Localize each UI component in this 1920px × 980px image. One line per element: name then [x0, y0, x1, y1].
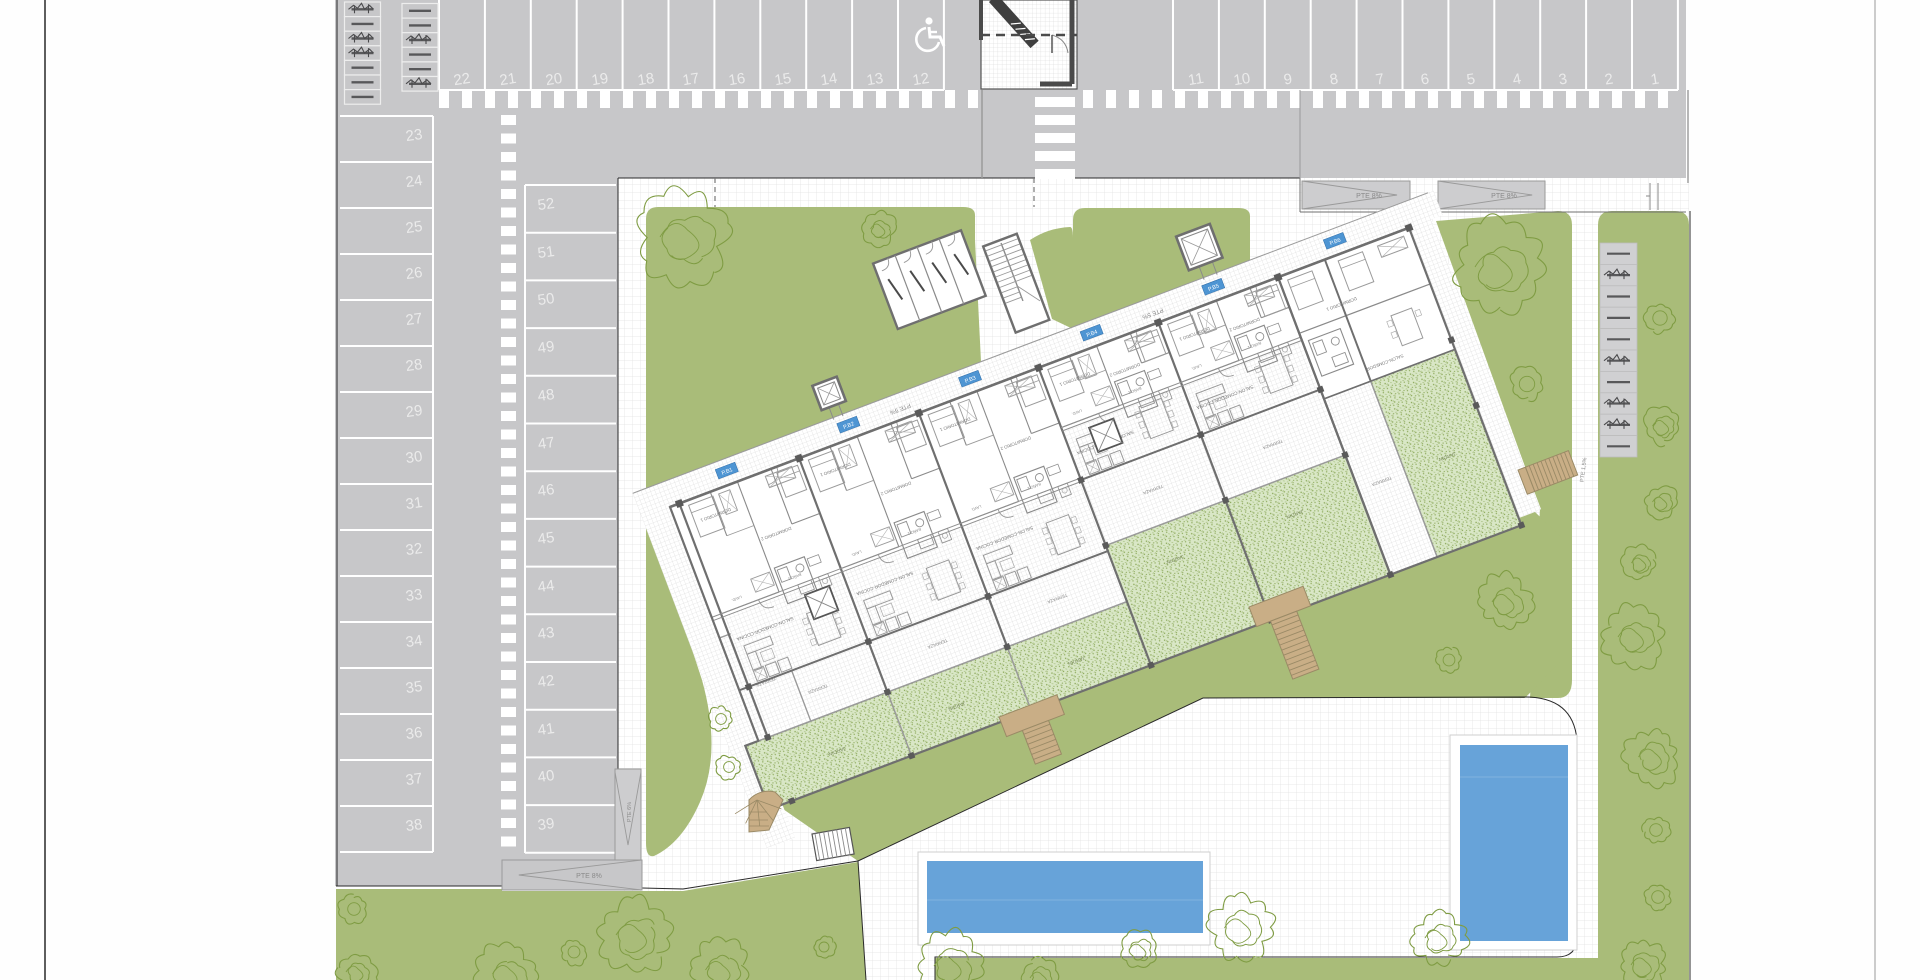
- svg-text:40: 40: [537, 767, 556, 786]
- svg-text:50: 50: [537, 290, 556, 309]
- svg-text:49: 49: [537, 338, 556, 357]
- svg-text:46: 46: [537, 481, 556, 500]
- svg-text:29: 29: [405, 402, 424, 421]
- svg-text:20: 20: [544, 70, 563, 89]
- svg-text:32: 32: [405, 540, 424, 559]
- svg-text:16: 16: [727, 70, 746, 89]
- svg-text:38: 38: [405, 816, 424, 835]
- svg-text:PTE 8%: PTE 8%: [1491, 193, 1517, 200]
- svg-text:48: 48: [537, 386, 556, 405]
- svg-text:22: 22: [452, 70, 471, 89]
- svg-text:34: 34: [405, 632, 424, 651]
- svg-text:42: 42: [537, 672, 556, 691]
- svg-text:PTE 8%: PTE 8%: [1356, 193, 1382, 200]
- svg-text:25: 25: [405, 218, 424, 237]
- svg-text:30: 30: [405, 448, 424, 467]
- svg-text:24: 24: [405, 172, 424, 191]
- svg-text:PTE 8%: PTE 8%: [576, 873, 602, 880]
- svg-text:11: 11: [1187, 70, 1205, 89]
- svg-text:15: 15: [773, 70, 792, 89]
- svg-text:17: 17: [681, 70, 700, 89]
- svg-text:45: 45: [537, 529, 556, 548]
- svg-text:52: 52: [537, 195, 556, 214]
- svg-text:18: 18: [636, 70, 655, 89]
- svg-text:21: 21: [498, 70, 517, 89]
- svg-text:36: 36: [405, 724, 424, 743]
- svg-text:19: 19: [590, 70, 609, 89]
- svg-text:41: 41: [537, 720, 556, 739]
- svg-text:26: 26: [405, 264, 424, 283]
- svg-text:12: 12: [911, 70, 930, 89]
- svg-text:47: 47: [537, 434, 556, 453]
- svg-text:10: 10: [1232, 70, 1251, 89]
- svg-text:14: 14: [819, 70, 838, 89]
- svg-text:13: 13: [865, 70, 884, 89]
- svg-text:31: 31: [405, 494, 424, 513]
- svg-text:43: 43: [537, 624, 556, 643]
- svg-text:39: 39: [537, 815, 556, 834]
- svg-text:37: 37: [405, 770, 424, 789]
- svg-text:51: 51: [537, 243, 556, 262]
- svg-text:27: 27: [405, 310, 424, 329]
- svg-text:28: 28: [405, 356, 424, 375]
- svg-text:33: 33: [405, 586, 424, 605]
- svg-text:35: 35: [405, 678, 424, 697]
- svg-text:44: 44: [537, 577, 556, 596]
- svg-text:PTE 6%: PTE 6%: [627, 802, 633, 822]
- svg-text:23: 23: [405, 126, 424, 145]
